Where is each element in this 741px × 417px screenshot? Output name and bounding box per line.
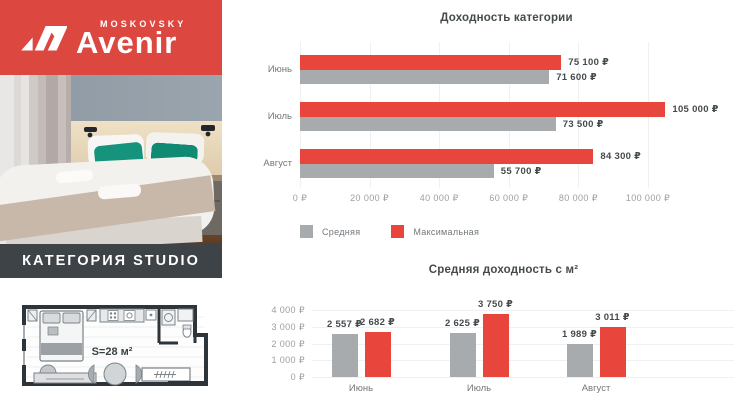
chart-row: Июль105 000 ₽73 500 ₽ <box>255 102 741 131</box>
legend-item: Средняя <box>300 225 360 238</box>
value-label: 2 682 ₽ <box>360 317 395 328</box>
max-bar <box>483 314 509 377</box>
value-label: 1 989 ₽ <box>562 329 597 340</box>
bar-fill <box>300 117 556 131</box>
value-label: 2 625 ₽ <box>445 318 480 329</box>
avg-per-m2-chart: Средняя доходность с м² 4 000 ₽3 000 ₽2 … <box>250 256 741 417</box>
bar-fill <box>300 164 494 178</box>
legend-swatch <box>391 225 404 238</box>
bar-group: 2 557 ₽2 682 ₽ <box>332 310 391 377</box>
bar-fill <box>300 149 593 164</box>
legend-swatch <box>300 225 313 238</box>
y-axis-tick: 0 ₽ <box>250 372 305 383</box>
chart-row: Июнь75 100 ₽71 600 ₽ <box>255 55 741 84</box>
floorplan-area-label: S=28 м² <box>92 346 133 358</box>
y-axis-tick: 4 000 ₽ <box>250 305 305 316</box>
avg-bar: 73 500 ₽ <box>300 117 741 131</box>
month-label: Июнь <box>321 383 401 394</box>
room-photo-art <box>0 75 222 244</box>
brand-name: Avenir <box>76 30 186 56</box>
value-label: 73 500 ₽ <box>563 119 604 130</box>
legend-label: Средняя <box>322 227 360 237</box>
x-axis-tick: 80 000 ₽ <box>541 193 615 204</box>
category-banner-label: КАТЕГОРИЯ STUDIO <box>22 253 200 269</box>
legend-item: Максимальная <box>391 225 479 238</box>
logo-banner: MOSKOVSKY Avenir <box>0 0 222 75</box>
value-label: 84 300 ₽ <box>600 151 641 162</box>
av-monogram-icon <box>17 23 67 53</box>
month-label: Июнь <box>255 64 300 75</box>
bar-pair: 75 100 ₽71 600 ₽ <box>300 55 741 84</box>
max-bar: 105 000 ₽ <box>300 102 741 117</box>
month-label: Июль <box>255 111 300 122</box>
value-label: 71 600 ₽ <box>556 72 597 83</box>
value-label: 105 000 ₽ <box>672 104 718 115</box>
legend-label: Максимальная <box>413 227 479 237</box>
brand-text: MOSKOVSKY Avenir <box>76 19 186 56</box>
avg-bar <box>450 333 476 377</box>
max-bar <box>365 332 391 377</box>
slide: MOSKOVSKY Avenir <box>0 0 741 417</box>
month-label: Июль <box>439 383 519 394</box>
chart-row: Август84 300 ₽55 700 ₽ <box>255 149 741 178</box>
bar-fill <box>300 55 561 70</box>
gridline <box>312 377 734 378</box>
avg-bar: 71 600 ₽ <box>300 70 741 84</box>
chart-bars-area: Июнь75 100 ₽71 600 ₽Июль105 000 ₽73 500 … <box>255 55 741 196</box>
month-label: Август <box>255 158 300 169</box>
x-axis-tick: 60 000 ₽ <box>472 193 546 204</box>
room-photo <box>0 75 222 244</box>
avg-bar <box>567 344 593 377</box>
x-axis-tick: 20 000 ₽ <box>333 193 407 204</box>
x-axis-tick: 100 000 ₽ <box>611 193 685 204</box>
value-label: 2 557 ₽ <box>327 319 362 330</box>
chart-title: Доходность категории <box>250 12 741 24</box>
legend: СредняяМаксимальная <box>300 225 479 238</box>
revenue-bar-chart: Доходность категории Июнь75 100 ₽71 600 … <box>250 12 741 252</box>
category-banner: КАТЕГОРИЯ STUDIO <box>0 244 222 278</box>
avg-bar: 55 700 ₽ <box>300 164 741 178</box>
bar-fill <box>300 70 549 84</box>
floorplan: S=28 м² <box>8 299 218 416</box>
bar-fill <box>300 102 665 117</box>
bar-group: 2 625 ₽3 750 ₽ <box>450 310 509 377</box>
x-axis-tick: 0 ₽ <box>263 193 337 204</box>
max-bar <box>600 327 626 377</box>
bar-group: 1 989 ₽3 011 ₽ <box>567 310 626 377</box>
x-axis-tick: 40 000 ₽ <box>402 193 476 204</box>
y-axis-tick: 2 000 ₽ <box>250 339 305 350</box>
max-bar: 84 300 ₽ <box>300 149 741 164</box>
avg-bar <box>332 334 358 377</box>
bar-pair: 84 300 ₽55 700 ₽ <box>300 149 741 178</box>
floorplan-drawing: S=28 м² <box>8 299 218 411</box>
y-axis-tick: 1 000 ₽ <box>250 355 305 366</box>
value-label: 55 700 ₽ <box>501 166 542 177</box>
value-label: 3 011 ₽ <box>595 312 630 323</box>
x-axis: 0 ₽20 000 ₽40 000 ₽60 000 ₽80 000 ₽100 0… <box>300 193 720 207</box>
chart-title: Средняя доходность с м² <box>250 256 741 276</box>
month-label: Август <box>556 383 636 394</box>
bar-pair: 105 000 ₽73 500 ₽ <box>300 102 741 131</box>
y-axis-tick: 3 000 ₽ <box>250 322 305 333</box>
max-bar: 75 100 ₽ <box>300 55 741 70</box>
chart-bars-area: 2 557 ₽2 682 ₽2 625 ₽3 750 ₽1 989 ₽3 011… <box>312 310 734 377</box>
y-axis: 4 000 ₽3 000 ₽2 000 ₽1 000 ₽0 ₽ <box>250 310 305 390</box>
value-label: 3 750 ₽ <box>478 299 513 310</box>
value-label: 75 100 ₽ <box>568 57 609 68</box>
